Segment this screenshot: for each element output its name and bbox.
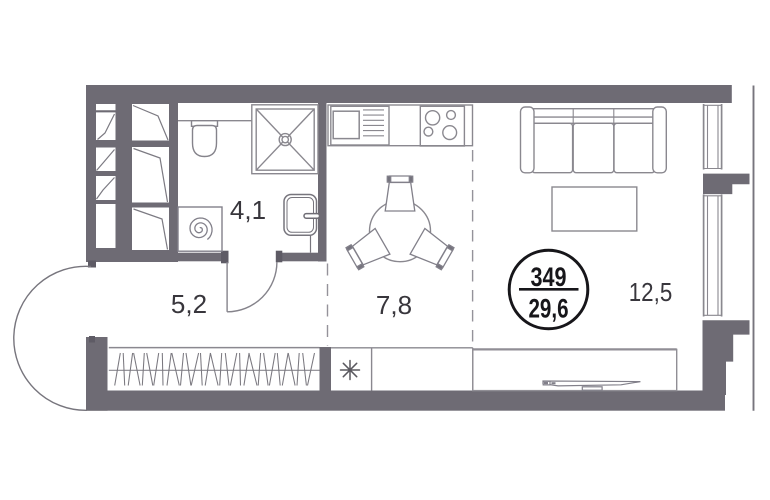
svg-text:7,8: 7,8 — [376, 290, 412, 320]
svg-text:29,6: 29,6 — [529, 294, 569, 324]
svg-text:12,5: 12,5 — [629, 277, 673, 307]
svg-text:5,2: 5,2 — [171, 289, 207, 319]
svg-text:349: 349 — [531, 262, 567, 292]
svg-text:4,1: 4,1 — [230, 195, 266, 225]
